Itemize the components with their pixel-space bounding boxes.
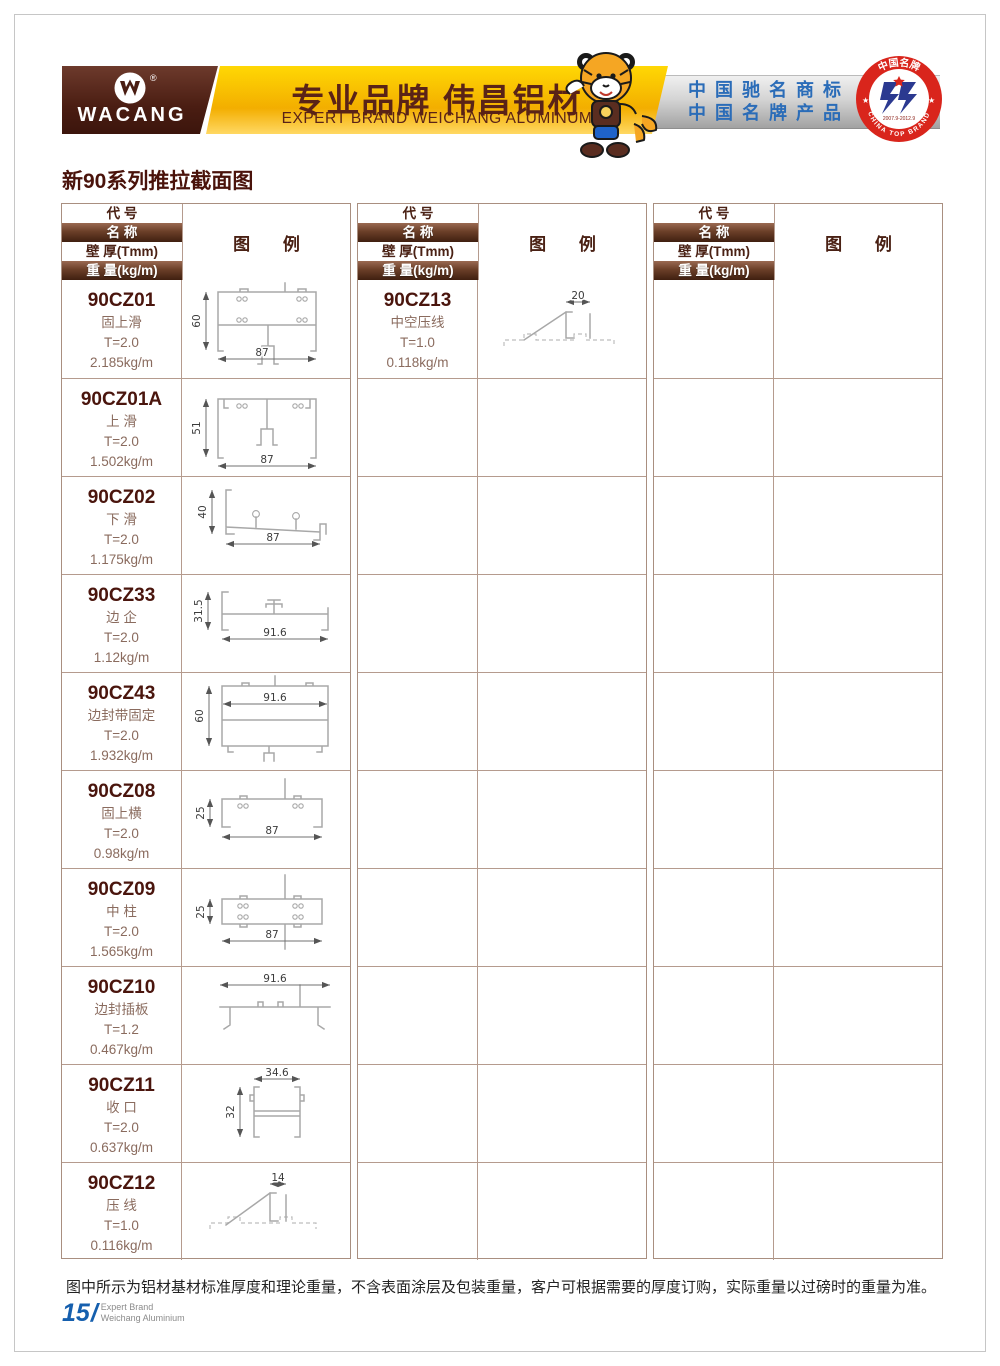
dim-label: 51: [191, 421, 203, 434]
dim-label: 14: [271, 1172, 285, 1184]
profile-name: 中空压线: [358, 313, 477, 333]
footer-brand-line-1: Expert Brand: [101, 1302, 154, 1312]
profile-code: 90CZ13: [358, 289, 477, 313]
profile-code: 90CZ12: [62, 1172, 181, 1196]
profile-diagram: 60 87: [182, 280, 350, 378]
profile-thickness: T=2.0: [62, 432, 181, 452]
dim-label: 91.6: [263, 627, 287, 639]
table-row: [654, 1064, 942, 1162]
profile-thickness: T=2.0: [62, 628, 181, 648]
profile-thickness: T=2.0: [62, 824, 181, 844]
badge-years: 2007.9-2012.9: [883, 116, 915, 122]
header-name: 名 称: [654, 223, 774, 242]
svg-text:★: ★: [862, 96, 869, 105]
profile-diagram: 25 87: [182, 869, 350, 966]
profile-code: 90CZ11: [62, 1074, 181, 1098]
profile-diagram: 34.6 32: [182, 1065, 350, 1162]
table-row: 90CZ10 边封插板 T=1.2 0.467kg/m 91.6: [62, 966, 350, 1064]
table-row: [654, 1162, 942, 1260]
profile-code: 90CZ01A: [62, 388, 181, 412]
footer-brand: Expert Brand Weichang Aluminium: [101, 1300, 185, 1324]
profile-name: 压 线: [62, 1196, 181, 1216]
table-row: 90CZ13 中空压线 T=1.0 0.118kg/m 20: [358, 280, 646, 378]
footer-brand-line-2: Weichang Aluminium: [101, 1313, 185, 1323]
dim-label: 40: [197, 505, 209, 518]
table-header: 代 号 名 称 壁 厚(Tmm) 重 量(kg/m) 图 例: [62, 204, 350, 280]
profile-code: 90CZ09: [62, 878, 181, 902]
profile-weight: 1.12kg/m: [62, 648, 181, 668]
profile-weight: 0.116kg/m: [62, 1236, 181, 1256]
table-row: [654, 476, 942, 574]
table-row: 90CZ12 压 线 T=1.0 0.116kg/m 14: [62, 1162, 350, 1260]
header-diagram: 图 例: [478, 204, 646, 280]
table-row: [654, 574, 942, 672]
header-thickness: 壁 厚(Tmm): [62, 242, 182, 261]
table-header: 代 号 名 称 壁 厚(Tmm) 重 量(kg/m) 图 例: [358, 204, 646, 280]
profile-weight: 2.185kg/m: [62, 353, 181, 373]
table-row: 90CZ02 下 滑 T=2.0 1.175kg/m 40 87: [62, 476, 350, 574]
profile-code: 90CZ10: [62, 976, 181, 1000]
dim-label: 60: [194, 709, 206, 722]
dim-label: 34.6: [265, 1067, 289, 1079]
wacang-logo-text: WACANG: [62, 104, 202, 127]
profile-thickness: T=2.0: [62, 333, 181, 353]
profile-name: 边封带固定: [62, 706, 181, 726]
page-title: 新90系列推拉截面图: [62, 165, 253, 195]
profile-weight: 1.175kg/m: [62, 550, 181, 570]
table-row: [654, 378, 942, 476]
profile-code: 90CZ08: [62, 780, 181, 804]
profile-weight: 0.467kg/m: [62, 1040, 181, 1060]
table-row: 90CZ09 中 柱 T=2.0 1.565kg/m 25 87: [62, 868, 350, 966]
svg-text:★: ★: [928, 96, 935, 105]
table-group-1: 代 号 名 称 壁 厚(Tmm) 重 量(kg/m) 图 例 90CZ01 固上…: [61, 203, 351, 1259]
profile-weight: 0.118kg/m: [358, 353, 477, 373]
profile-thickness: T=2.0: [62, 1118, 181, 1138]
catalog-page: 中国驰名商标 中国名牌产品 专业品牌 伟昌铝材 EXPERT BRAND WEI…: [0, 0, 1000, 1366]
header-thickness: 壁 厚(Tmm): [654, 242, 774, 261]
table-row: [654, 280, 942, 378]
dim-label: 91.6: [263, 692, 287, 704]
header-weight: 重 量(kg/m): [358, 261, 478, 280]
table-row: [358, 770, 646, 868]
profile-diagram: 91.6 60: [182, 673, 350, 770]
table-row: [358, 868, 646, 966]
dim-label: 87: [266, 532, 279, 544]
header-name: 名 称: [358, 223, 478, 242]
profile-diagram: 51 87: [182, 379, 350, 476]
profile-weight: 0.98kg/m: [62, 844, 181, 864]
table-group-2: 代 号 名 称 壁 厚(Tmm) 重 量(kg/m) 图 例 90CZ13 中空…: [357, 203, 647, 1259]
registered-mark: ®: [150, 73, 157, 83]
profile-code: 90CZ33: [62, 584, 181, 608]
table-row: [654, 770, 942, 868]
profile-name: 上 滑: [62, 412, 181, 432]
profile-thickness: T=2.0: [62, 726, 181, 746]
table-row: [654, 672, 942, 770]
wacang-logo-block: ® WACANG: [62, 66, 218, 134]
table-row: 90CZ01 固上滑 T=2.0 2.185kg/m 60 87: [62, 280, 350, 378]
profile-weight: 1.502kg/m: [62, 452, 181, 472]
table-row: 90CZ33 边 企 T=2.0 1.12kg/m 31.5 91.6: [62, 574, 350, 672]
dim-label: 60: [191, 314, 203, 327]
profile-weight: 1.565kg/m: [62, 942, 181, 962]
page-number: 15: [62, 1300, 90, 1326]
profile-code: 90CZ01: [62, 289, 181, 313]
profile-name: 下 滑: [62, 510, 181, 530]
dim-label: 25: [195, 905, 207, 918]
dim-label: 87: [255, 347, 268, 359]
profile-diagram: 40 87: [182, 477, 350, 574]
profile-thickness: T=2.0: [62, 922, 181, 942]
profile-diagram: 25 87: [182, 771, 350, 868]
profile-diagram: 91.6: [182, 967, 350, 1064]
header-diagram: 图 例: [774, 204, 942, 280]
honor-line-2: 中国名牌产品: [688, 102, 850, 125]
table-group-3: 代 号 名 称 壁 厚(Tmm) 重 量(kg/m) 图 例: [653, 203, 943, 1259]
dim-label: 31.5: [193, 599, 205, 622]
dim-label: 20: [571, 290, 584, 302]
table-row: [358, 378, 646, 476]
table-row: [358, 1064, 646, 1162]
dim-label: 87: [265, 929, 278, 941]
profile-weight: 0.637kg/m: [62, 1138, 181, 1158]
profile-code: 90CZ02: [62, 486, 181, 510]
table-row: [654, 868, 942, 966]
honors-text: 中国驰名商标 中国名牌产品: [688, 79, 850, 125]
footer-note: 图中所示为铝材基材标准厚度和理论重量，不含表面涂层及包装重量，客户可根据需要的厚…: [61, 1276, 941, 1297]
profile-diagram: 20: [478, 280, 646, 378]
table-row: 90CZ01A 上 滑 T=2.0 1.502kg/m 51 87: [62, 378, 350, 476]
profile-name: 中 柱: [62, 902, 181, 922]
profile-diagram: 31.5 91.6: [182, 575, 350, 672]
profile-thickness: T=1.2: [62, 1020, 181, 1040]
header-code: 代 号: [358, 204, 478, 223]
profile-diagram: 14: [182, 1163, 350, 1260]
table-row: [358, 1162, 646, 1260]
table-row: [358, 476, 646, 574]
table-row: [358, 672, 646, 770]
table-row: [654, 966, 942, 1064]
header-name: 名 称: [62, 223, 182, 242]
profile-name: 固上滑: [62, 313, 181, 333]
table-header: 代 号 名 称 壁 厚(Tmm) 重 量(kg/m) 图 例: [654, 204, 942, 280]
table-row: 90CZ08 固上横 T=2.0 0.98kg/m 25 87: [62, 770, 350, 868]
tiger-mascot-icon: [556, 46, 668, 167]
header-code: 代 号: [62, 204, 182, 223]
dim-label: 25: [195, 806, 207, 819]
header-diagram: 图 例: [182, 204, 350, 280]
honor-line-1: 中国驰名商标: [688, 79, 850, 102]
table-row: 90CZ43 边封带固定 T=2.0 1.932kg/m 91.6 60: [62, 672, 350, 770]
header-weight: 重 量(kg/m): [654, 261, 774, 280]
header-weight: 重 量(kg/m): [62, 261, 182, 280]
profile-code: 90CZ43: [62, 682, 181, 706]
dim-label: 91.6: [263, 973, 287, 985]
profile-weight: 1.932kg/m: [62, 746, 181, 766]
header-thickness: 壁 厚(Tmm): [358, 242, 478, 261]
table-row: [358, 574, 646, 672]
page-number-slash: /: [91, 1300, 98, 1326]
dim-label: 32: [225, 1105, 237, 1118]
china-top-brand-badge-icon: 中国名牌 CHINA TOP BRAND ★ ★ 2007.9-2012.9: [854, 54, 944, 149]
profile-name: 边 企: [62, 608, 181, 628]
profile-thickness: T=2.0: [62, 530, 181, 550]
header-code: 代 号: [654, 204, 774, 223]
profile-name: 固上横: [62, 804, 181, 824]
table-row: [358, 966, 646, 1064]
profile-name: 边封插板: [62, 1000, 181, 1020]
table-row: 90CZ11 收 口 T=2.0 0.637kg/m 34.6 32: [62, 1064, 350, 1162]
page-number-block: 15 / Expert Brand Weichang Aluminium: [62, 1300, 185, 1326]
dim-label: 87: [260, 454, 273, 466]
dim-label: 87: [265, 825, 278, 837]
profile-thickness: T=1.0: [62, 1216, 181, 1236]
profile-thickness: T=1.0: [358, 333, 477, 353]
profile-name: 收 口: [62, 1098, 181, 1118]
